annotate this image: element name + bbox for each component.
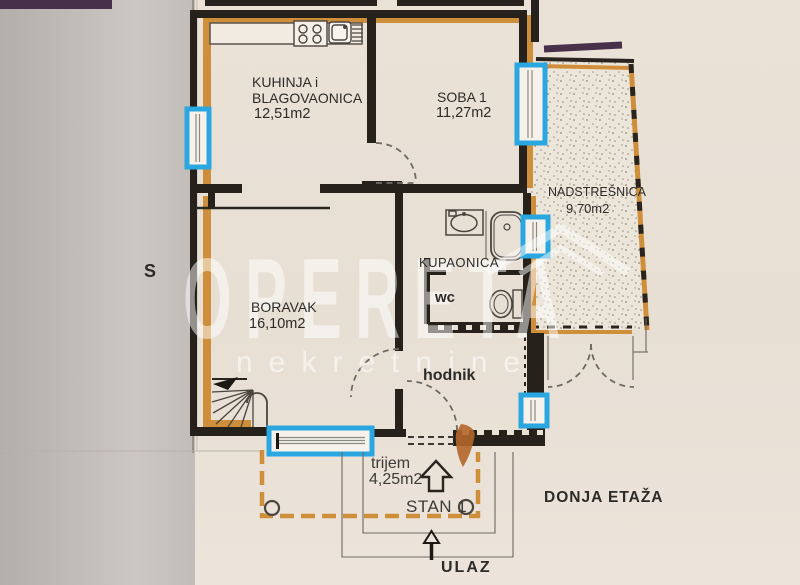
- washbasin-icon: [446, 210, 483, 235]
- entrance-label: ULAZ: [441, 560, 492, 576]
- watermark-tagline: nekretnine: [236, 348, 536, 378]
- stairs-icon: [212, 377, 267, 427]
- area-label-trijem: 4,25m2: [369, 472, 422, 488]
- kitchen-sink-icon: [329, 22, 351, 43]
- area-label-boravak: 16,10m2: [249, 317, 305, 332]
- highlight-stain: [456, 424, 475, 467]
- window-marker-soba-right: [517, 65, 545, 143]
- floor-label: DONJA ETAŽA: [544, 490, 664, 506]
- room-label-kitchen-line1: KUHINJA i: [252, 75, 318, 89]
- window-marker-kitchen-left: [187, 109, 209, 167]
- north-label: S: [144, 262, 156, 280]
- room-label-hodnik: hodnik: [423, 368, 475, 384]
- room-label-trijem: trijem: [371, 456, 410, 472]
- upper-cut-wall: [205, 0, 524, 6]
- unit-label: STAN 1: [406, 498, 467, 515]
- entrance-arrow-icon: [424, 531, 439, 560]
- area-label-kitchen: 12,51m2: [254, 107, 310, 122]
- room-label-kupaonica: KUPAONICA: [419, 256, 499, 269]
- watermark-brand: OPERETA: [183, 243, 574, 357]
- floor-plan-photo: OPERETA nekretnine KUHINJA i BLAGOVAONIC…: [0, 0, 800, 585]
- column-marker: [265, 501, 279, 515]
- direction-arrow-icon: [421, 461, 451, 491]
- room-label-nadstresnica: NADSTREŠNICA: [548, 186, 646, 199]
- window-marker-hodnik-right: [521, 395, 547, 426]
- stove-icon: [294, 21, 327, 46]
- area-label-soba1: 11,27m2: [436, 106, 491, 121]
- room-label-kitchen-line2: BLAGOVAONICA: [252, 91, 362, 105]
- room-label-boravak: BORAVAK: [251, 300, 317, 314]
- window-marker-boravak-bottom: [269, 428, 372, 454]
- room-label-wc: wc: [435, 290, 455, 305]
- room-label-soba1: SOBA 1: [437, 90, 487, 104]
- area-label-nadstresnica: 9,70m2: [566, 202, 609, 215]
